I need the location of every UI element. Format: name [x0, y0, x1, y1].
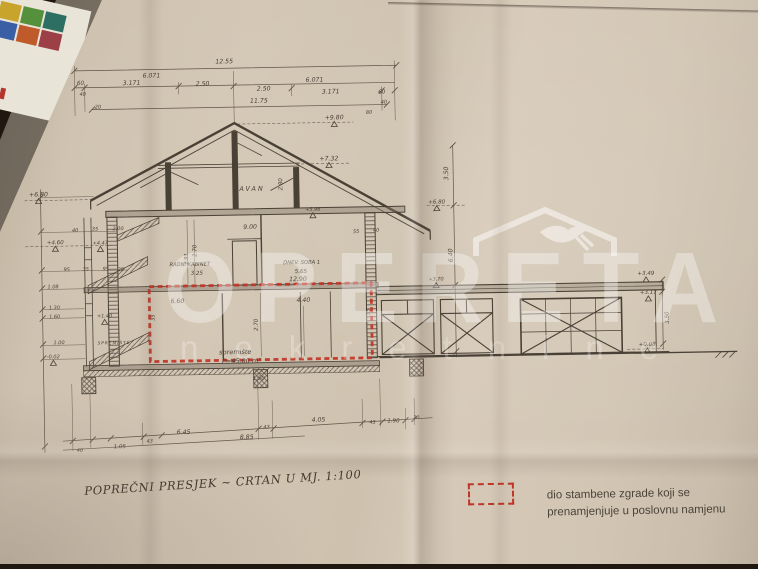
dim-label: spremište [219, 348, 251, 357]
level-marker-icon [102, 319, 108, 324]
dim-label: 4.40 [296, 297, 310, 304]
dim-label: 6.40 [447, 248, 454, 262]
blueprint-paper: 12.556.0716.071603.1712.502.503.17160402… [0, 0, 758, 564]
dim-label: 2.50 [257, 85, 271, 92]
dim-label: +4.47 [93, 240, 109, 246]
dim-label: DNEV. SOBA 1 [283, 260, 320, 267]
legend-swatch-red-dashed [468, 483, 514, 506]
dim-label: +7.32 [319, 155, 338, 162]
dim-label: +5.96 [305, 207, 320, 213]
dim-label: P=45,00 m² [222, 357, 262, 366]
color-swatch [0, 1, 22, 22]
annotation-layer: 12.556.0716.071603.1712.502.503.17160402… [27, 51, 673, 455]
dim-label: +9.80 [325, 114, 344, 121]
dim-label: TAVAN [234, 185, 265, 194]
level-marker-icon [645, 296, 651, 301]
dim-label: 35 [92, 227, 98, 233]
dim-label: 25 [118, 267, 124, 273]
dim-label: 6.071 [142, 72, 160, 79]
dim-label: 12.55 [215, 58, 233, 65]
dim-label: 8.85 [240, 434, 254, 441]
dim-label: 55 [353, 229, 359, 235]
dim-label: 1.90 [387, 418, 400, 424]
dim-label: 20 [95, 104, 101, 110]
dim-label: 40 [77, 448, 83, 454]
dim-label: 1.50 [253, 376, 266, 382]
dim-label: 43 [263, 425, 269, 431]
dim-label: 35 [151, 314, 157, 320]
dim-label: 2.00 [112, 226, 123, 232]
dim-label: 6.45 [177, 429, 191, 436]
garage-extension [376, 282, 669, 357]
dim-label: 4.05 [311, 417, 325, 424]
dim-label: 40 [381, 99, 387, 105]
dim-label: 3.50 [443, 166, 450, 180]
dim-label: 40 [373, 228, 379, 234]
dim-label: 43 [369, 420, 375, 426]
garage-door-panel [520, 297, 622, 354]
level-marker-icon [50, 360, 56, 365]
color-swatch [0, 19, 18, 40]
dim-label: +3.17 [640, 290, 657, 296]
legend-text: dio stambene zgrade koji se prenamjenjuj… [547, 484, 726, 522]
dim-label: 2.80 [278, 178, 284, 191]
level-marker-icon [643, 277, 649, 282]
dim-label: +3.49 [637, 271, 654, 277]
dimension-lines [22, 56, 668, 453]
roof-posts [164, 130, 299, 210]
dim-label: 43 [147, 439, 153, 445]
dim-label: +4.60 [47, 240, 64, 246]
dim-label: 9.00 [243, 224, 257, 231]
attic-floor-slab [106, 206, 405, 217]
dim-label: 5.65 [295, 269, 308, 275]
color-swatch [42, 11, 66, 32]
dim-label: 6.071 [306, 77, 324, 84]
dim-label: 2.70 [192, 244, 198, 257]
level-marker-icon [97, 246, 103, 251]
dim-label: 6.60 [170, 298, 184, 305]
dim-label: +1.40 [97, 313, 112, 319]
dim-label: +6.80 [29, 191, 48, 198]
dim-label: 40 [79, 92, 85, 98]
color-booklet-grid [0, 1, 72, 52]
dim-label: 1.08 [47, 284, 58, 290]
dim-label: 95 [64, 267, 70, 273]
dim-label: 1.30 [49, 305, 60, 311]
dim-label: 1.00 [53, 340, 64, 346]
roof-outline [89, 120, 430, 237]
dim-label: 3.25 [191, 271, 204, 277]
color-swatch [38, 30, 62, 51]
dim-label: 3.171 [123, 80, 141, 87]
dim-label: RADNI KABINET [169, 262, 211, 269]
dim-label: +0.08 [639, 342, 656, 348]
dim-label: 35 [83, 267, 89, 273]
dim-label: 80 [366, 110, 372, 116]
photo-of-blueprint: { "scene":{ "background_color":"#201711"… [0, 0, 758, 564]
garage-door-panel [440, 299, 493, 354]
dim-label: 60 [77, 81, 85, 87]
dim-label: +3.70 [428, 276, 443, 282]
dim-label: 2.50 [196, 81, 210, 88]
color-swatch [16, 25, 40, 46]
dim-label: -0.02 [47, 354, 60, 360]
dim-label: 20 [413, 415, 419, 421]
dim-label: 3.50 [665, 311, 671, 324]
dim-label: 1.05 [114, 444, 127, 450]
mid-floor-slab [84, 283, 378, 293]
dim-label: 40 [72, 228, 78, 234]
level-marker-icon [434, 206, 440, 211]
dim-label: 2.70 [254, 318, 260, 331]
color-swatch [20, 6, 44, 27]
interior-door [232, 241, 257, 285]
level-marker-icon [331, 121, 337, 126]
dim-label: 1.60 [49, 314, 60, 320]
dim-label: 60 [378, 89, 386, 95]
legend-line-2: prenamjenjuje u poslovnu namjenu [547, 502, 726, 522]
dim-label: 3.171 [322, 88, 340, 95]
level-marker-icon [52, 246, 58, 251]
garage-door-panel [381, 300, 434, 355]
dim-label: 11.75 [250, 98, 268, 105]
dim-label: 35 [366, 309, 372, 315]
dim-label: +6.80 [428, 199, 445, 205]
dim-label: 12.90 [289, 276, 307, 283]
dim-label: 95 [103, 266, 109, 272]
